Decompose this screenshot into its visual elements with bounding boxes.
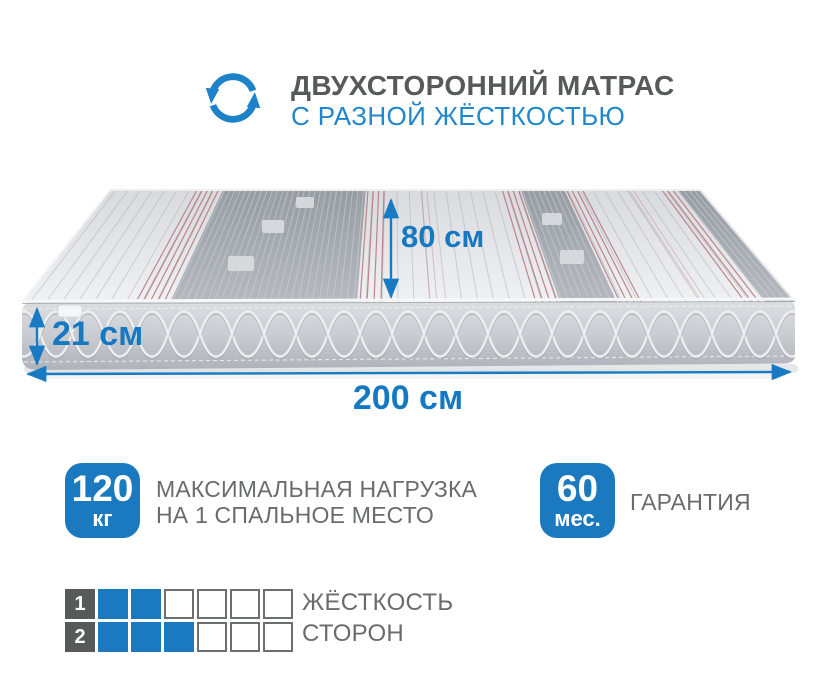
warranty-value: 60 (557, 471, 598, 507)
hardness-cell (98, 589, 128, 619)
warranty-label: ГАРАНТИЯ (630, 489, 751, 515)
dimension-height-label: 21 см (52, 315, 143, 354)
hardness-row-side-1: 1 (65, 589, 293, 619)
hardness-cell (230, 589, 260, 619)
max-load-value: 120 (72, 471, 134, 507)
hardness-cell (197, 622, 227, 652)
hardness-cell (230, 622, 260, 652)
warranty-unit: мес. (554, 507, 601, 530)
hardness-cell (131, 589, 161, 619)
hardness-cell (197, 589, 227, 619)
hardness-cell (98, 622, 128, 652)
hardness-cell (164, 622, 194, 652)
page-subtitle: С РАЗНОЙ ЖЁСТКОСТЬЮ (291, 101, 625, 132)
side-1-label: 1 (65, 589, 95, 619)
max-load-label: МАКСИМАЛЬНАЯ НАГРУЗКА НА 1 СПАЛЬНОЕ МЕСТ… (156, 476, 477, 528)
dimension-length-label: 200 см (280, 379, 536, 418)
hardness-cell (263, 589, 293, 619)
hardness-cell (263, 622, 293, 652)
side-2-label: 2 (65, 622, 95, 652)
hardness-scale-label: ЖЁСТКОСТЬ СТОРОН (302, 587, 453, 649)
page-title: ДВУХСТОРОННИЙ МАТРАС (291, 70, 675, 102)
hardness-cell (164, 589, 194, 619)
two-sided-rotation-icon (202, 68, 264, 128)
length-arrow (28, 372, 790, 374)
warranty-badge: 60 мес. (540, 463, 615, 538)
hardness-cell (131, 622, 161, 652)
dimension-depth-label: 80 см (401, 219, 484, 255)
max-load-badge: 120 кг (65, 463, 140, 538)
mattress-infographic: ДВУХСТОРОННИЙ МАТРАС С РАЗНОЙ ЖЁСТКОСТЬЮ (0, 0, 816, 700)
max-load-unit: кг (92, 507, 112, 530)
hardness-row-side-2: 2 (65, 622, 293, 652)
hardness-scale: 1 2 (65, 589, 293, 655)
mattress-shadow (24, 364, 798, 373)
